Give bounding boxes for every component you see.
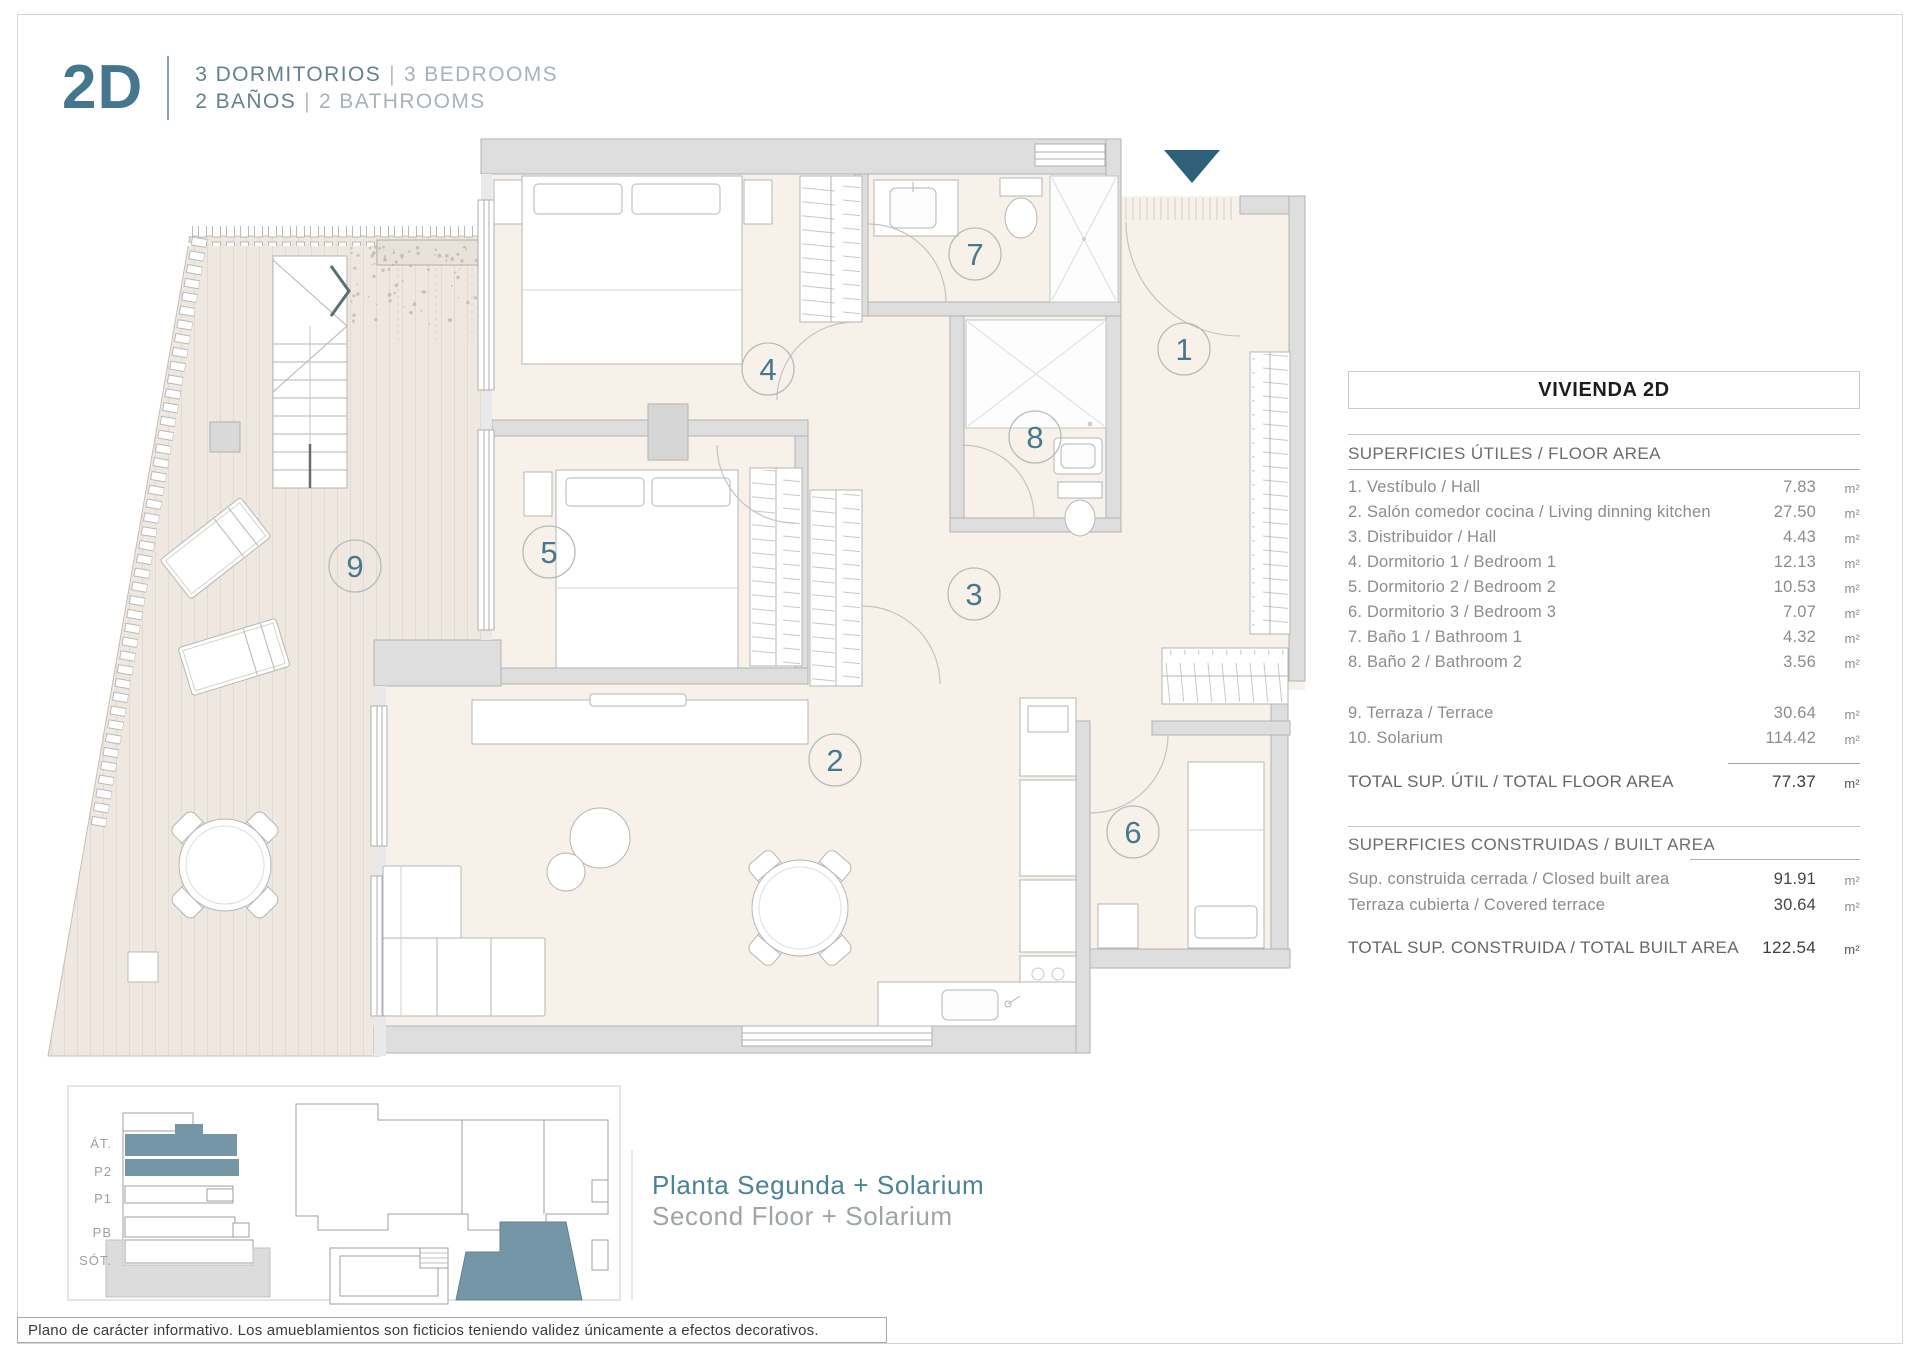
floor-label-sotano: SÓT. [79, 1253, 112, 1268]
bedrooms-line: 3 DORMITORIOS|3 BEDROOMS [195, 63, 558, 86]
table-row: 1. Vestíbulo / Hall7.83m² [1348, 475, 1860, 500]
floor-label-p1: P1 [94, 1191, 112, 1206]
floor-label-p2: P2 [94, 1164, 112, 1179]
table-row: 2. Salón comedor cocina / Living dinning… [1348, 500, 1860, 525]
wardrobe [1162, 648, 1288, 704]
table-row: Terraza cubierta / Covered terrace30.64m… [1348, 892, 1860, 918]
svg-text:3: 3 [965, 577, 982, 612]
floor-area-header: SUPERFICIES ÚTILES / FLOOR AREA [1348, 434, 1860, 470]
table-row: 7. Baño 1 / Bathroom 14.32m² [1348, 625, 1860, 650]
nightstand [524, 472, 552, 516]
table-row: 10. Solarium114.42m² [1348, 726, 1860, 751]
svg-text:9: 9 [346, 549, 363, 584]
exterior-area-rows: 9. Terraza / Terrace30.64m² 10. Solarium… [1348, 701, 1860, 751]
site-plan [296, 1104, 608, 1304]
header-divider [167, 56, 169, 120]
dining-table-set [746, 848, 854, 968]
total-built-area-row: TOTAL SUP. CONSTRUIDA / TOTAL BUILT AREA… [1348, 934, 1860, 962]
shower [1050, 176, 1118, 302]
double-bed [556, 470, 738, 668]
unit-code: 2D [62, 57, 143, 119]
floor-title: Planta Segunda + Solarium Second Floor +… [652, 1170, 984, 1231]
terrace-column [210, 422, 240, 452]
svg-text:5: 5 [540, 535, 557, 570]
bathroom2-sink [1054, 438, 1102, 474]
kitchen-sink-counter [878, 982, 1076, 1026]
panel-title: VIVIENDA 2D [1348, 371, 1860, 409]
disclaimer-bar: Plano de carácter informativo. Los amueb… [17, 1317, 887, 1343]
total-floor-area-row: TOTAL SUP. ÚTIL / TOTAL FLOOR AREA 77.37… [1348, 768, 1860, 796]
wardrobe [1250, 352, 1290, 634]
svg-text:8: 8 [1026, 420, 1043, 455]
bathrooms-line: 2 BAÑOS|2 BATHROOMS [195, 90, 558, 113]
floor-label-pb: PB [93, 1225, 112, 1240]
wardrobe [750, 468, 802, 666]
built-area-rows: Sup. construida cerrada / Closed built a… [1348, 866, 1860, 918]
floor-label-atico: ÁT. [90, 1136, 112, 1151]
terrace-planter-small [128, 952, 158, 982]
svg-text:6: 6 [1124, 815, 1141, 850]
header: 2D 3 DORMITORIOS|3 BEDROOMS 2 BAÑOS|2 BA… [62, 56, 558, 120]
wardrobe [800, 176, 862, 322]
single-bed [1188, 762, 1264, 948]
table-row: 5. Dormitorio 2 / Bedroom 210.53m² [1348, 575, 1860, 600]
area-table: VIVIENDA 2D SUPERFICIES ÚTILES / FLOOR A… [1348, 371, 1860, 962]
outdoor-table-set [169, 809, 281, 921]
highlighted-unit [456, 1222, 582, 1300]
bathroom1-sink [874, 180, 958, 236]
table-row: 3. Distribuidor / Hall4.43m² [1348, 525, 1860, 550]
disclaimer-text: Plano de carácter informativo. Los amueb… [28, 1322, 819, 1339]
svg-text:2: 2 [826, 743, 843, 778]
pool [330, 1248, 448, 1304]
sideboard [472, 694, 808, 744]
double-bed [522, 176, 742, 364]
nightstand [494, 180, 522, 224]
table-row: 9. Terraza / Terrace30.64m² [1348, 701, 1860, 726]
svg-text:4: 4 [759, 352, 776, 387]
built-area-header: SUPERFICIES CONSTRUIDAS / BUILT AREA [1348, 827, 1860, 860]
highlighted-floors [125, 1124, 239, 1176]
total-separator [1728, 763, 1860, 764]
building-section: ÁT. P2 P1 PB SÓT. [79, 1113, 270, 1297]
stairs [273, 256, 349, 488]
kitchen-units [1020, 698, 1076, 1020]
shower [966, 320, 1106, 428]
brochure-page: 1 2 3 4 5 6 7 [0, 0, 1920, 1357]
table-row: 8. Baño 2 / Bathroom 23.56m² [1348, 650, 1860, 675]
floor-title-es: Planta Segunda + Solarium [652, 1170, 984, 1201]
table-row: 6. Dormitorio 3 / Bedroom 37.07m² [1348, 600, 1860, 625]
svg-text:7: 7 [966, 237, 983, 272]
nightstand [1098, 904, 1138, 948]
svg-text:1: 1 [1175, 332, 1192, 367]
floor-title-en: Second Floor + Solarium [652, 1201, 984, 1232]
wardrobe [810, 490, 862, 686]
nightstand [744, 180, 772, 224]
key-diagrams: ÁT. P2 P1 PB SÓT. [68, 1086, 632, 1304]
floor-area-rows: 1. Vestíbulo / Hall7.83m² 2. Salón comed… [1348, 475, 1860, 675]
table-row: 4. Dormitorio 1 / Bedroom 112.13m² [1348, 550, 1860, 575]
table-row: Sup. construida cerrada / Closed built a… [1348, 866, 1860, 892]
